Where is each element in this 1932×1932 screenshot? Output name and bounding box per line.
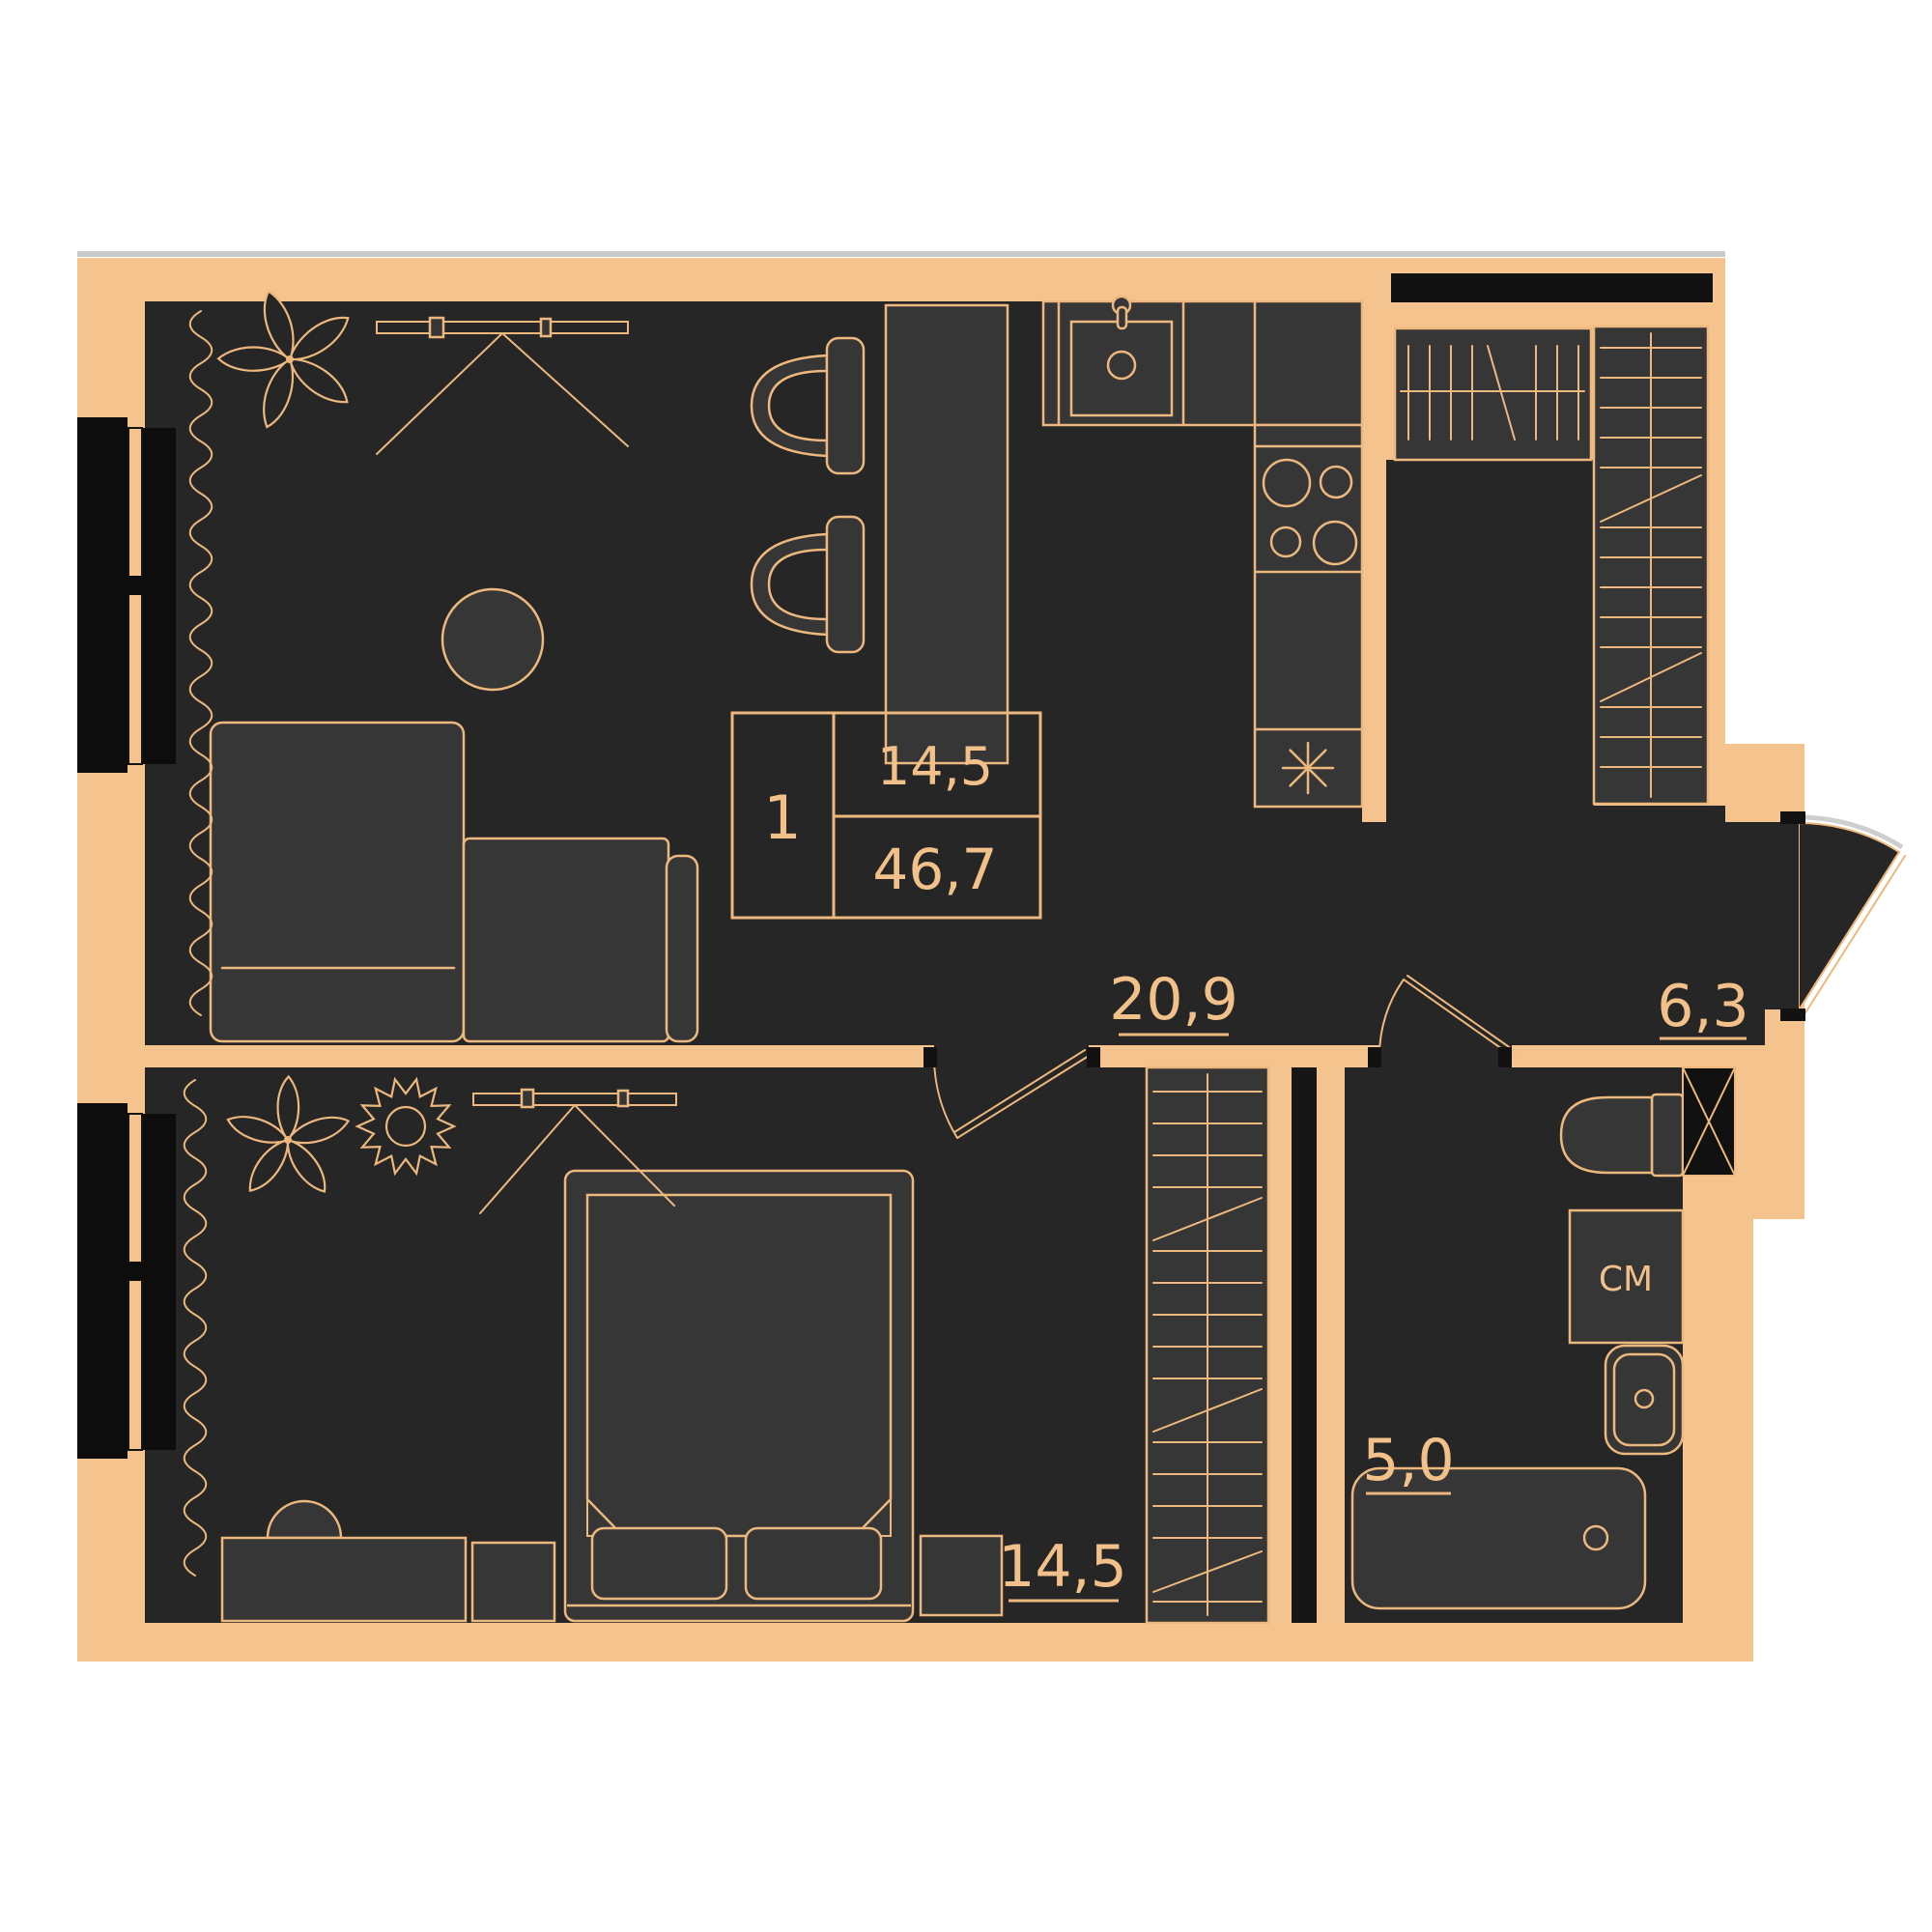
appliance-star-icon — [1283, 743, 1333, 793]
living-area-label: 20,9 — [1109, 966, 1238, 1034]
top-shadow-line — [77, 251, 1725, 257]
passage-floor — [1362, 822, 1386, 1045]
floor-plan: СМ 2 — [0, 0, 1932, 1932]
floor-plan-page: СМ 2 — [0, 0, 1932, 1932]
nightstand — [472, 1543, 554, 1621]
structural-bar — [1391, 273, 1713, 302]
duct-shaft — [1292, 1067, 1317, 1623]
bedroom-area-label: 14,5 — [998, 1533, 1127, 1601]
entrance-door-stop — [1780, 811, 1805, 824]
pillow — [746, 1528, 881, 1599]
washing-machine: СМ — [1570, 1210, 1683, 1343]
vent-shaft-icon — [1683, 1067, 1735, 1176]
bathroom-area-label: 5,0 — [1362, 1427, 1454, 1494]
closet-hanger — [1395, 328, 1591, 460]
info-total-area: 46,7 — [872, 837, 997, 902]
dining-table — [886, 305, 1008, 763]
bathroom-sink-icon — [1605, 1346, 1683, 1454]
info-rooms-count: 1 — [763, 782, 801, 853]
bed — [565, 1171, 913, 1621]
hallway-area-label: 6,3 — [1657, 973, 1748, 1040]
window-bedroom-icon — [77, 1103, 176, 1459]
coffee-table — [442, 589, 543, 690]
room-hallway-floor — [1386, 460, 1594, 1045]
info-room-area: 14,5 — [877, 736, 993, 797]
bedroom-door-threshold — [934, 1045, 1089, 1067]
window-living-icon — [77, 417, 176, 773]
washing-machine-label: СМ — [1599, 1260, 1653, 1299]
nightstand — [921, 1536, 1002, 1615]
bathroom-door-threshold — [1379, 1045, 1512, 1067]
entrance-door-stop — [1780, 1009, 1805, 1021]
pillow — [592, 1528, 726, 1599]
toilet-icon — [1561, 1094, 1683, 1176]
